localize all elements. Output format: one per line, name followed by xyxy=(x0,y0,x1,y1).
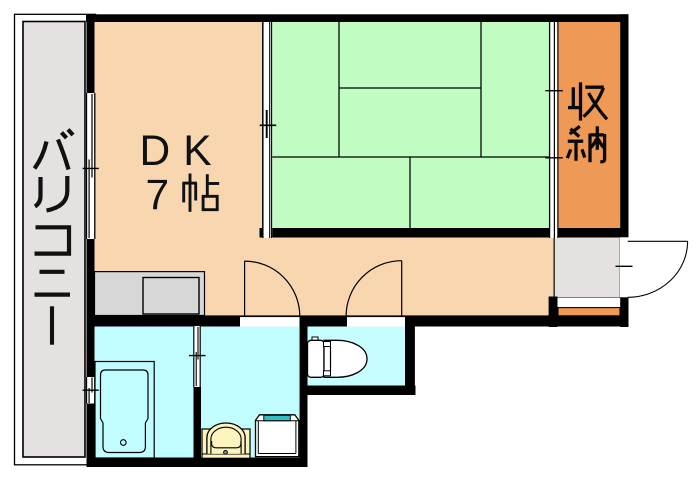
svg-text:7: 7 xyxy=(146,172,170,219)
svg-text:DK: DK xyxy=(140,128,225,175)
